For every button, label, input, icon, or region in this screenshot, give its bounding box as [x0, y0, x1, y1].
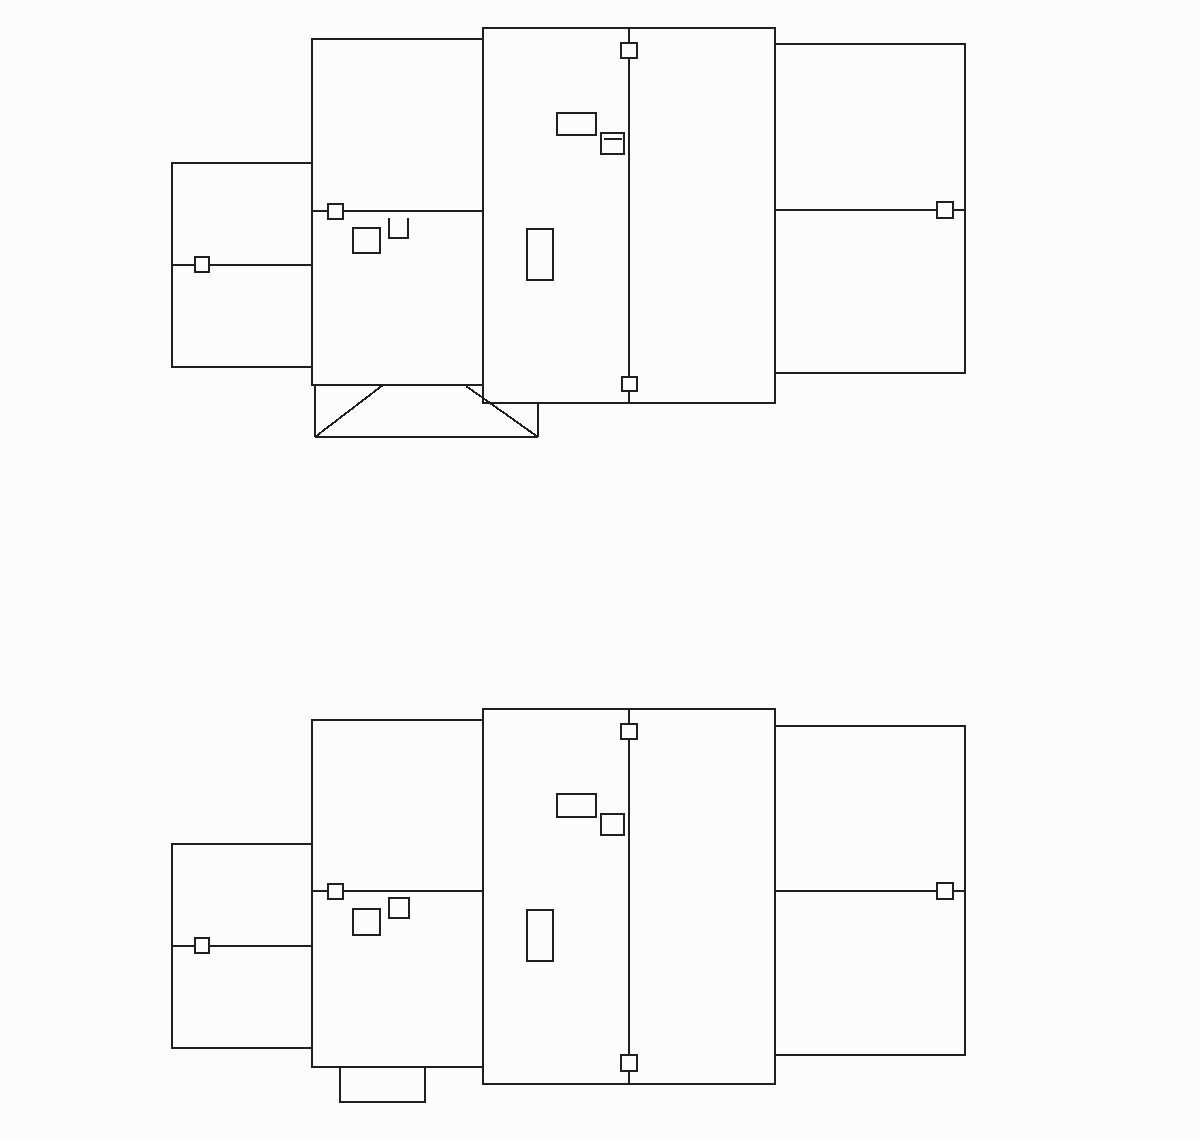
dormer-rect [353, 909, 380, 935]
porch-hip-left [315, 385, 383, 437]
lower-roof-plan [172, 709, 965, 1102]
vent-tall-rect [527, 229, 553, 280]
skylight-rect [601, 814, 624, 835]
dormer-rect [353, 228, 380, 253]
ridge-box-marker-center-bottom [622, 377, 637, 391]
chimney-rect [557, 113, 596, 135]
ridge-box-marker-mid-wing [328, 204, 343, 219]
ridge-box-marker-mid-wing [328, 884, 343, 899]
ridge-box-marker-center-top [621, 43, 637, 58]
chimney-rect [557, 794, 596, 817]
ridge-box-marker-center-bottom [621, 1055, 637, 1071]
skylight-rect [601, 133, 624, 154]
vent-tall-rect [527, 910, 553, 961]
ridge-box-marker-right-wing [937, 202, 953, 218]
bump-out-outline [340, 1067, 425, 1102]
ridge-box-marker-left-wing [195, 938, 209, 953]
ridge-box-marker-right-wing [937, 883, 953, 899]
upper-roof-plan [172, 28, 965, 437]
ridge-box-marker-left-wing [195, 257, 209, 272]
small-box [389, 898, 409, 918]
ridge-box-marker-center-top [621, 724, 637, 739]
roof-plan-canvas [0, 0, 1200, 1138]
